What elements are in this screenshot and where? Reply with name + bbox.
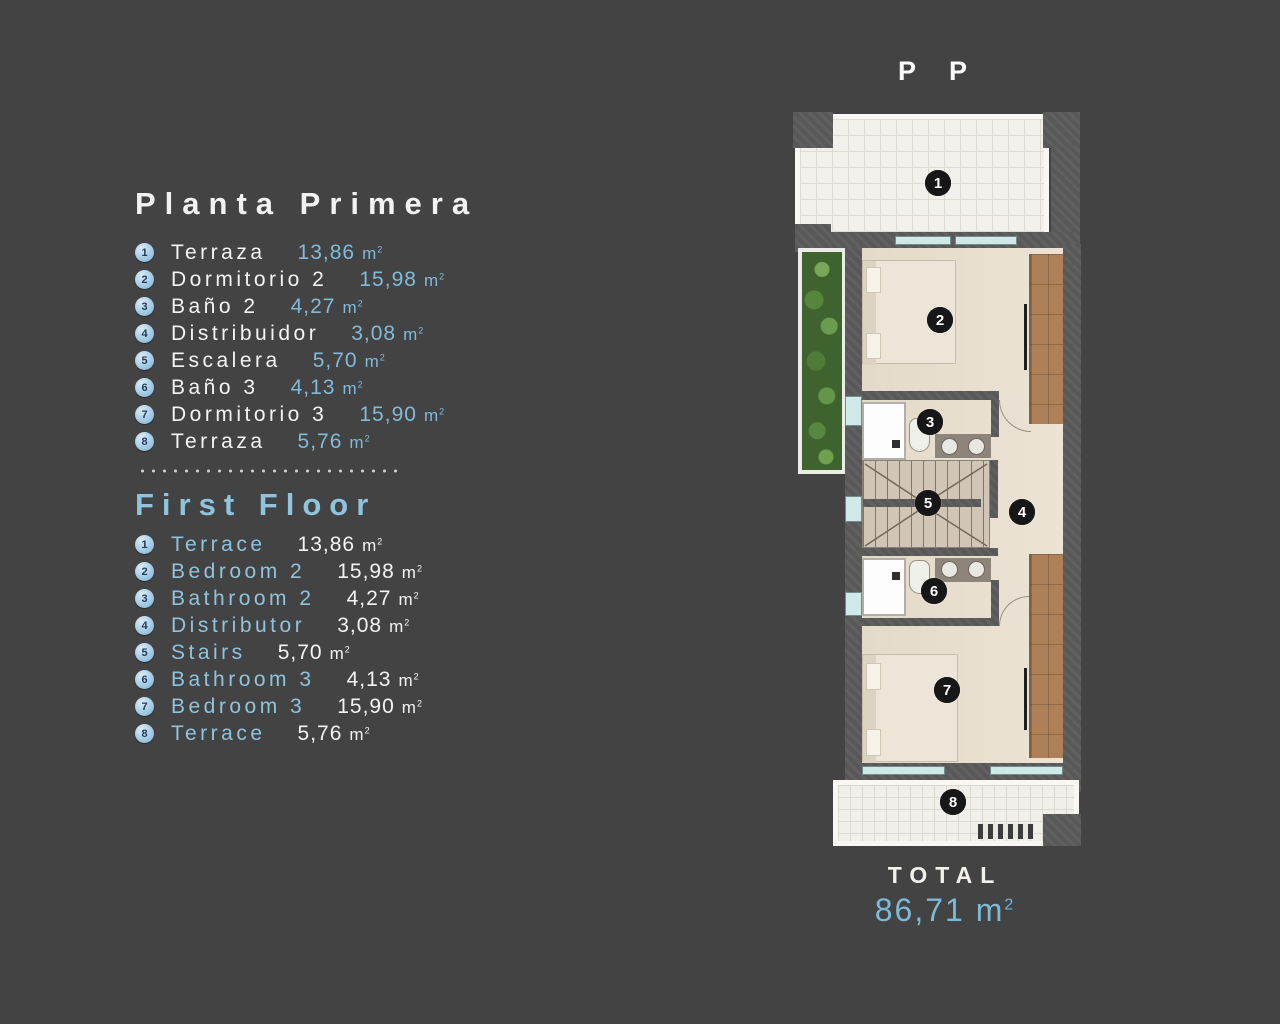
wall-right-upper	[1051, 146, 1080, 244]
legend-row: 3Baño 24,27m2	[135, 293, 575, 320]
room-area: 4,27m2	[347, 587, 420, 611]
room-number-badge: 8	[135, 432, 154, 451]
room-number-badge: 6	[135, 378, 154, 397]
sink	[941, 438, 958, 455]
shower-drain	[892, 440, 900, 448]
terrace-1-area	[795, 114, 1049, 242]
wall-bathroom2-top	[862, 391, 998, 400]
room-number-badge: 4	[135, 616, 154, 635]
wall-bathroom3-bottom	[862, 618, 998, 626]
room-label: Bedroom 2	[171, 560, 305, 584]
room-number-badge: 7	[135, 697, 154, 716]
vanity-bathroom2	[935, 434, 991, 458]
vanity-bathroom3	[935, 558, 991, 582]
room-area: 5,70m2	[278, 641, 351, 665]
sliding-door-glass	[862, 766, 945, 775]
room-number-badge: 3	[135, 589, 154, 608]
room-list-spanish: 1Terraza13,86m2 2Dormitorio 215,98m2 3Ba…	[135, 239, 575, 455]
room-label: Escalera	[171, 349, 281, 373]
garden-planter-area	[798, 248, 846, 474]
legend-row: 7Bedroom 315,90m2	[135, 693, 575, 720]
room-number-badge: 2	[135, 562, 154, 581]
room-label: Terrace	[171, 533, 266, 557]
room-label: Terraza	[171, 430, 266, 454]
room-number-badge: 2	[135, 270, 154, 289]
wardrobe-bedroom3	[1029, 554, 1063, 758]
room-area: 15,90m2	[359, 403, 445, 427]
legend-row: 3Bathroom 24,27m2	[135, 585, 575, 612]
legend-row: 2Bedroom 215,98m2	[135, 558, 575, 585]
legend-row: 8Terraza5,76m2	[135, 428, 575, 455]
plan-marker-6: 6	[921, 578, 947, 604]
bed-pillow	[866, 729, 881, 756]
legend-panel: Planta Primera 1Terraza13,86m2 2Dormitor…	[135, 186, 575, 747]
legend-row: 4Distributor3,08m2	[135, 612, 575, 639]
sink	[968, 438, 985, 455]
wall-corner-top-left	[793, 112, 833, 148]
bed-bedroom3	[862, 654, 958, 762]
room-label: Stairs	[171, 641, 246, 665]
sliding-door-glass	[895, 236, 951, 245]
room-label: Dormitorio 2	[171, 268, 327, 292]
room-number-badge: 7	[135, 405, 154, 424]
room-number-badge: 8	[135, 724, 154, 743]
room-area: 3,08m2	[351, 322, 424, 346]
room-number-badge: 6	[135, 670, 154, 689]
wall-stairs-right	[990, 460, 998, 518]
room-label: Bathroom 3	[171, 668, 315, 692]
separator-dotted-line	[137, 469, 399, 473]
sliding-door-glass	[990, 766, 1063, 775]
plan-marker-4: 4	[1009, 499, 1035, 525]
legend-row: 5Stairs5,70m2	[135, 639, 575, 666]
shower-bathroom3	[862, 558, 906, 616]
sink	[968, 561, 985, 578]
plan-marker-7: 7	[934, 677, 960, 703]
room-label: Terrace	[171, 722, 266, 746]
room-area: 5,76m2	[298, 722, 371, 746]
wall-bathroom3-right	[991, 580, 999, 626]
legend-heading-english: First Floor	[135, 487, 575, 523]
bed-pillow	[866, 267, 881, 293]
room-number-badge: 5	[135, 351, 154, 370]
legend-row: 8Terrace5,76m2	[135, 720, 575, 747]
legend-row: 7Dormitorio 315,90m2	[135, 401, 575, 428]
room-number-badge: 3	[135, 297, 154, 316]
wardrobe-rail	[1024, 304, 1027, 370]
room-number-badge: 1	[135, 535, 154, 554]
room-label: Bathroom 2	[171, 587, 315, 611]
room-number-badge: 5	[135, 643, 154, 662]
wardrobe-bedroom2	[1029, 254, 1063, 424]
room-list-english: 1Terrace13,86m2 2Bedroom 215,98m2 3Bathr…	[135, 531, 575, 747]
window-left-3	[845, 592, 862, 616]
room-area: 15,90m2	[337, 695, 423, 719]
wall-corner-bottom-right	[1043, 814, 1081, 846]
room-label: Dormitorio 3	[171, 403, 327, 427]
room-area: 5,70m2	[313, 349, 386, 373]
room-label: Baño 3	[171, 376, 259, 400]
plan-marker-8: 8	[940, 789, 966, 815]
floor-plan: 1 2 3 4 5 6 7 8	[793, 108, 1085, 850]
room-label: Bedroom 3	[171, 695, 305, 719]
total-label: TOTAL	[795, 862, 1095, 889]
room-label: Distribuidor	[171, 322, 319, 346]
plan-title: P P	[793, 56, 1085, 87]
room-area: 3,08m2	[337, 614, 410, 638]
bed-pillow	[866, 663, 881, 690]
legend-row: 6Baño 34,13m2	[135, 374, 575, 401]
bed-pillow	[866, 333, 881, 359]
legend-heading-spanish: Planta Primera	[135, 186, 575, 222]
room-area: 4,13m2	[347, 668, 420, 692]
legend-row: 6Bathroom 34,13m2	[135, 666, 575, 693]
window-left-2	[845, 496, 862, 522]
room-label: Baño 2	[171, 295, 259, 319]
plan-marker-2: 2	[927, 307, 953, 333]
total-value: 86,71 m2	[795, 892, 1095, 929]
room-area: 13,86m2	[298, 241, 384, 265]
shower-bathroom2	[862, 402, 906, 460]
legend-row: 1Terraza13,86m2	[135, 239, 575, 266]
room-area: 15,98m2	[337, 560, 423, 584]
room-number-badge: 4	[135, 324, 154, 343]
plan-marker-5: 5	[915, 490, 941, 516]
sliding-door-glass	[955, 236, 1017, 245]
legend-row: 2Dormitorio 215,98m2	[135, 266, 575, 293]
shower-drain	[892, 572, 900, 580]
wall-bathroom2-right	[991, 391, 999, 437]
room-area: 4,13m2	[291, 376, 364, 400]
room-label: Terraza	[171, 241, 266, 265]
plan-marker-1: 1	[925, 170, 951, 196]
legend-row: 1Terrace13,86m2	[135, 531, 575, 558]
wall-corner-top-right	[1043, 112, 1080, 148]
room-area: 4,27m2	[291, 295, 364, 319]
wardrobe-rail	[1024, 668, 1027, 730]
room-number-badge: 1	[135, 243, 154, 262]
legend-row: 4Distribuidor3,08m2	[135, 320, 575, 347]
room-area: 5,76m2	[298, 430, 371, 454]
sink	[941, 561, 958, 578]
wall-right-main	[1063, 244, 1081, 792]
wall-bathroom3-top	[862, 548, 998, 556]
room-label: Distributor	[171, 614, 305, 638]
wall-bedroom3-terrace	[845, 763, 1081, 781]
total-block: TOTAL 86,71 m2	[795, 862, 1095, 929]
room-area: 13,86m2	[298, 533, 384, 557]
terrace-stair-hatch	[978, 824, 1034, 839]
legend-row: 5Escalera5,70m2	[135, 347, 575, 374]
window-left-1	[845, 396, 862, 426]
plan-marker-3: 3	[917, 409, 943, 435]
room-area: 15,98m2	[359, 268, 445, 292]
